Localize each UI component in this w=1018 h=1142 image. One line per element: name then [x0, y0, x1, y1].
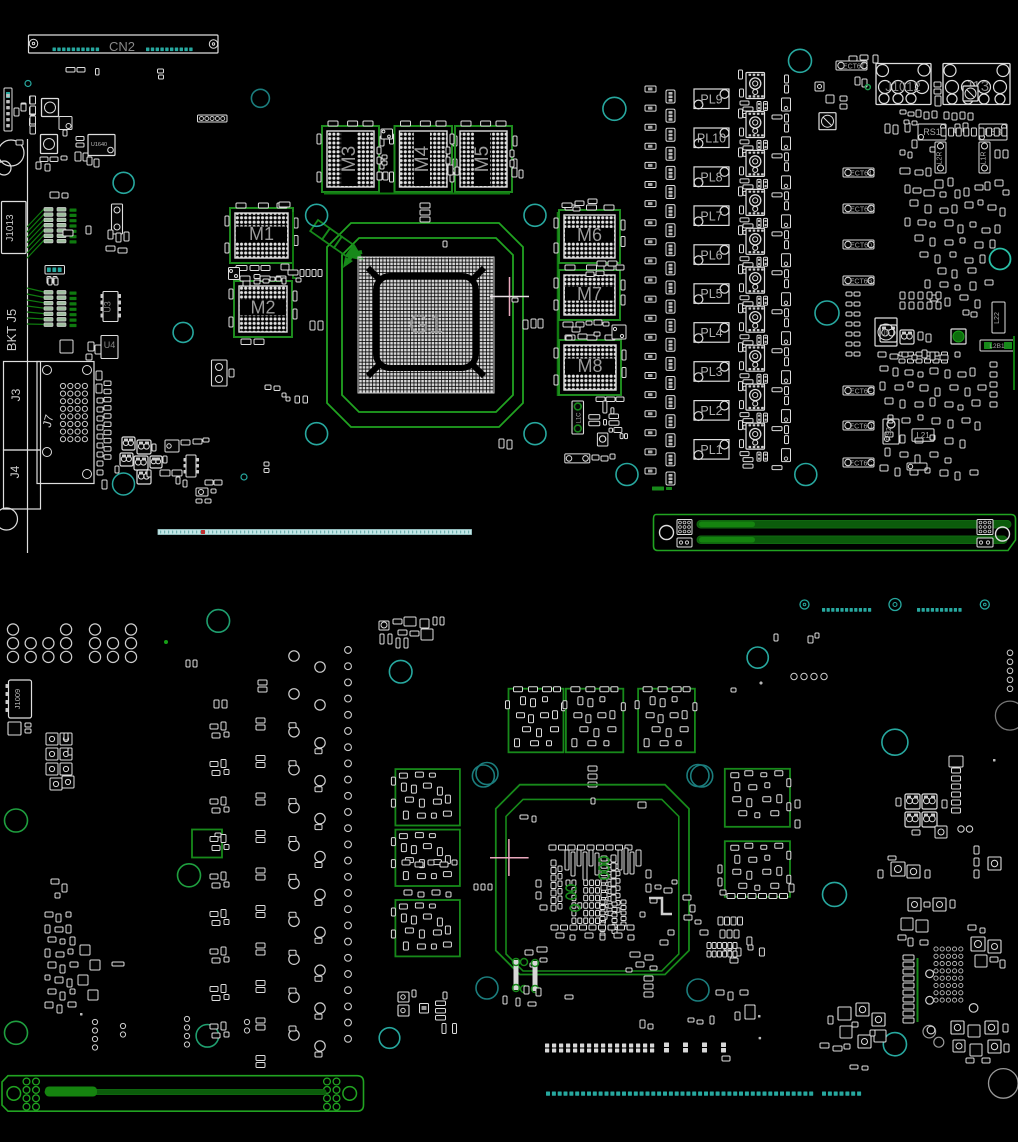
svg-text:L2B1: L2B1	[989, 343, 1005, 350]
svg-text:PL7: PL7	[700, 209, 722, 223]
svg-text:J3: J3	[9, 388, 23, 401]
svg-text:PL2: PL2	[700, 404, 722, 418]
svg-text:ECT6F: ECT6F	[850, 389, 872, 396]
svg-text:J5: J5	[882, 328, 891, 337]
svg-text:BKT J5: BKT J5	[4, 309, 19, 351]
svg-text:M3: M3	[339, 146, 360, 172]
svg-text:ECT6B: ECT6B	[850, 279, 873, 286]
svg-text:PL9: PL9	[700, 93, 722, 107]
svg-text:ECT6D: ECT6D	[850, 424, 873, 431]
svg-text:M8: M8	[577, 356, 602, 376]
svg-text:PL4: PL4	[700, 326, 722, 340]
svg-text:J1013: J1013	[5, 214, 16, 242]
svg-text:L2R: L2R	[937, 152, 944, 165]
svg-text:U3: U3	[103, 301, 113, 313]
svg-text:L21: L21	[916, 431, 930, 440]
svg-text:U4: U4	[104, 340, 116, 350]
svg-text:CN2: CN2	[109, 39, 135, 54]
svg-text:ECT6T: ECT6T	[843, 64, 866, 71]
svg-text:M1: M1	[249, 224, 274, 244]
svg-text:PL3: PL3	[700, 365, 722, 379]
svg-text:L22: L22	[994, 312, 1001, 324]
svg-text:J1012: J1012	[885, 79, 920, 94]
svg-text:J1009: J1009	[13, 689, 22, 709]
svg-text:M7: M7	[577, 284, 602, 304]
svg-text:PL8: PL8	[700, 170, 722, 184]
svg-text:PL1: PL1	[700, 443, 722, 457]
svg-text:PL10: PL10	[697, 131, 726, 145]
svg-text:L1C: L1C	[577, 412, 583, 424]
svg-text:PL5: PL5	[700, 287, 722, 301]
svg-text:ECT6C: ECT6C	[850, 461, 873, 468]
svg-text:J4: J4	[8, 465, 22, 478]
svg-text:M2: M2	[250, 298, 275, 318]
svg-text:PL6: PL6	[700, 248, 722, 262]
svg-text:M4: M4	[412, 145, 433, 172]
svg-text:U1640: U1640	[91, 142, 107, 148]
svg-text:L1R: L1R	[981, 152, 988, 165]
svg-text:RS1: RS1	[923, 127, 941, 137]
svg-text:M6: M6	[577, 225, 602, 245]
svg-text:G1: G1	[409, 309, 444, 339]
svg-text:M5: M5	[472, 146, 493, 172]
